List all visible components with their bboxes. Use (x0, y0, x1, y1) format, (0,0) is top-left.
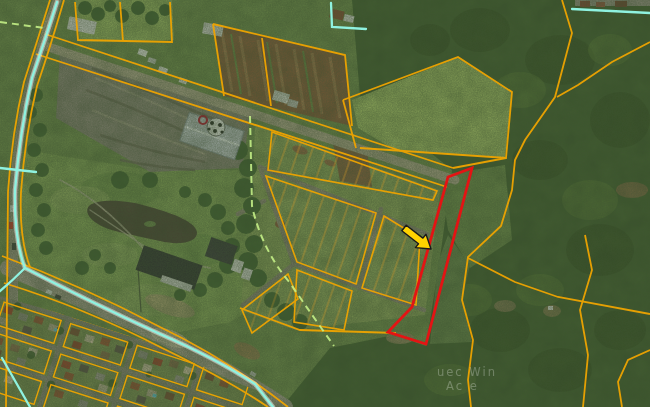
map-canvas[interactable]: uec Win Ac e (0, 0, 650, 407)
watermark-line-1: uec Win (437, 365, 497, 379)
watermark-line-2: Ac e (446, 379, 479, 393)
map-viewport[interactable]: uec Win Ac e (0, 0, 650, 407)
